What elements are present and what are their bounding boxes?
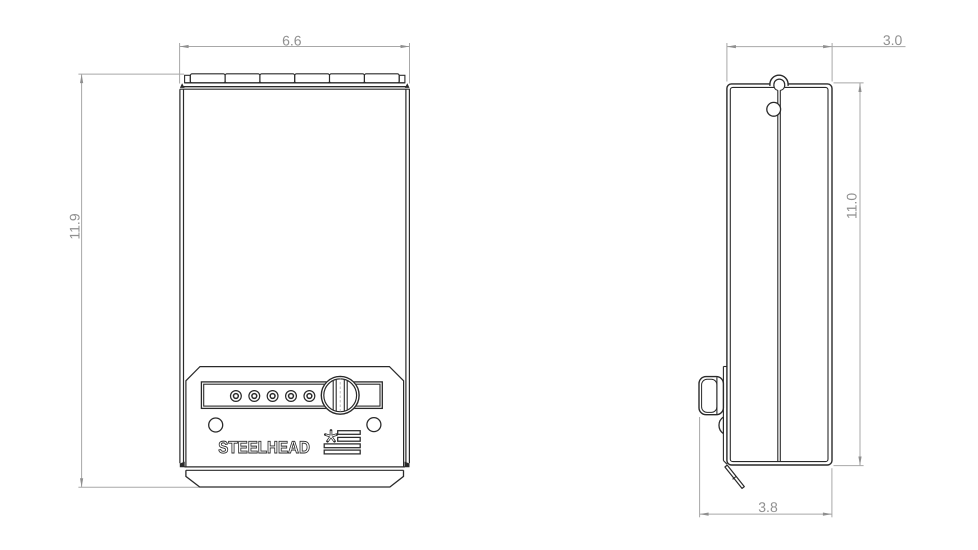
svg-text:STEELHEAD: STEELHEAD: [218, 438, 310, 457]
svg-text:11.0: 11.0: [844, 193, 860, 219]
svg-text:3.0: 3.0: [883, 32, 903, 48]
svg-text:3.8: 3.8: [758, 499, 778, 515]
svg-text:11.9: 11.9: [67, 213, 83, 239]
svg-text:6.6: 6.6: [282, 33, 302, 49]
